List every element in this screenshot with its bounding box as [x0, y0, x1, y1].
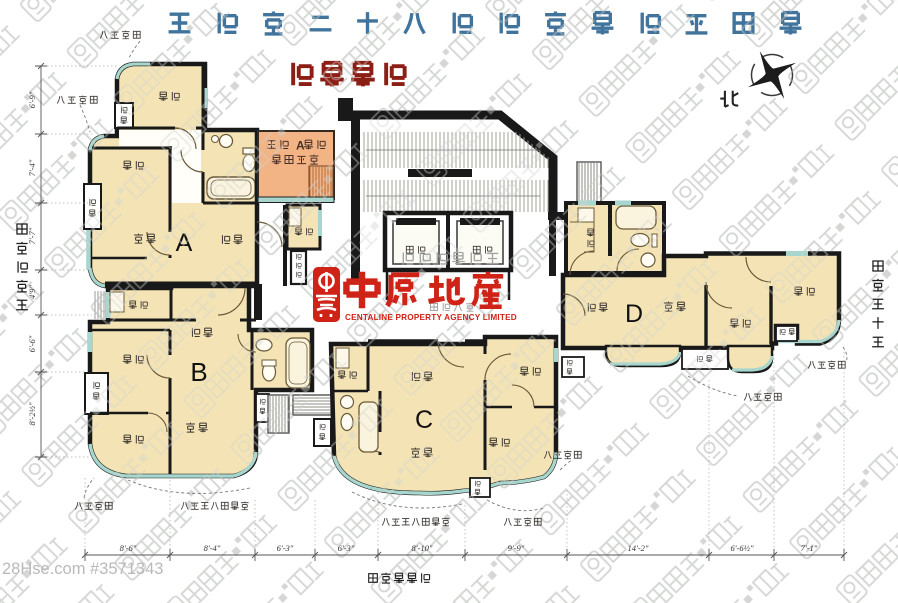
svg-text:6'-6½": 6'-6½" — [730, 543, 754, 553]
svg-text:CENTALINE PROPERTY AGENCY LIMI: CENTALINE PROPERTY AGENCY LIMITED — [345, 313, 517, 322]
svg-text:7'-7": 7'-7" — [27, 227, 37, 244]
svg-text:6'-9": 6'-9" — [27, 91, 37, 108]
svg-text:4'9": 4'9" — [27, 285, 37, 299]
svg-text:8'-2½": 8'-2½" — [27, 402, 37, 426]
svg-text:7'-4": 7'-4" — [27, 159, 37, 176]
svg-text:14'-2": 14'-2" — [628, 543, 649, 553]
svg-text:7'-1": 7'-1" — [801, 543, 818, 553]
svg-text:8'-6": 8'-6" — [120, 543, 137, 553]
svg-text:6'-3": 6'-3" — [277, 543, 294, 553]
svg-text:9'-9": 9'-9" — [508, 543, 525, 553]
svg-text:8'-10": 8'-10" — [412, 543, 433, 553]
svg-text:28Hse.com #3571343: 28Hse.com #3571343 — [2, 560, 163, 578]
svg-text:6'-3": 6'-3" — [338, 543, 355, 553]
svg-text:6'-6": 6'-6" — [27, 335, 37, 352]
svg-text:8'-4": 8'-4" — [204, 543, 221, 553]
